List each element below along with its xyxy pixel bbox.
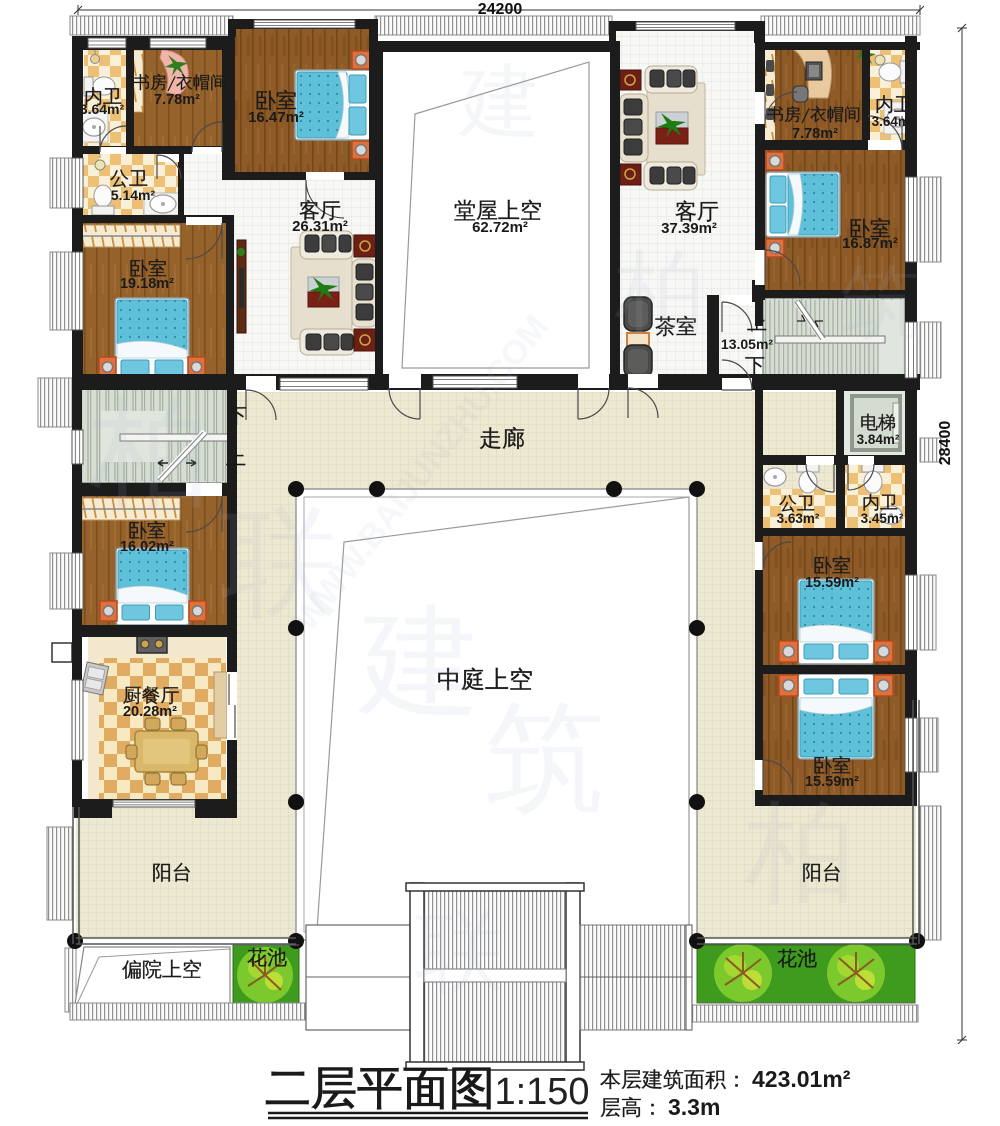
svg-text:1:150: 1:150 bbox=[494, 1071, 589, 1113]
svg-text:16.47m²: 16.47m² bbox=[248, 109, 304, 126]
svg-text:16.02m²: 16.02m² bbox=[120, 539, 174, 555]
svg-text:20.28m²: 20.28m² bbox=[123, 704, 177, 720]
svg-text:24200: 24200 bbox=[478, 1, 523, 18]
svg-text:3.63m²: 3.63m² bbox=[777, 511, 820, 526]
svg-text:7.78m²: 7.78m² bbox=[792, 126, 838, 142]
svg-text:3.64m²: 3.64m² bbox=[80, 101, 125, 117]
svg-text:16.87m²: 16.87m² bbox=[842, 235, 898, 252]
svg-text:28400: 28400 bbox=[937, 421, 954, 466]
svg-text:13.05m²: 13.05m² bbox=[721, 336, 773, 352]
svg-text:37.39m²: 37.39m² bbox=[661, 220, 717, 237]
svg-text:7.78m²: 7.78m² bbox=[154, 92, 200, 108]
svg-text:15.59m²: 15.59m² bbox=[805, 575, 859, 591]
svg-text:26.31m²: 26.31m² bbox=[292, 218, 348, 235]
svg-text:3.84m²: 3.84m² bbox=[857, 432, 900, 447]
svg-text:3.45m²: 3.45m² bbox=[861, 511, 904, 526]
svg-text:3.3m: 3.3m bbox=[668, 1094, 720, 1120]
svg-text:19.18m²: 19.18m² bbox=[120, 276, 174, 292]
svg-text:62.72m²: 62.72m² bbox=[472, 219, 528, 236]
svg-text:3.64m²: 3.64m² bbox=[872, 114, 915, 129]
svg-text:5.14m²: 5.14m² bbox=[111, 187, 156, 203]
svg-text:423.01m²: 423.01m² bbox=[752, 1066, 851, 1092]
svg-text:15.59m²: 15.59m² bbox=[805, 774, 859, 790]
